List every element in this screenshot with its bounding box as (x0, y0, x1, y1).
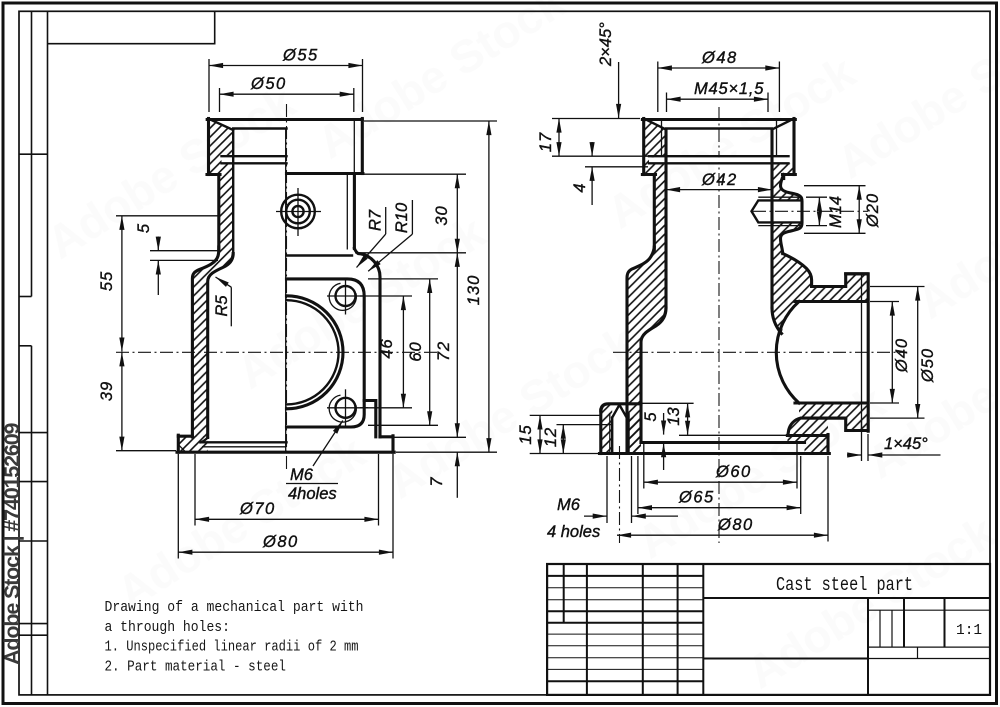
svg-text:Cast steel part: Cast steel part (776, 574, 913, 596)
svg-text:Ø50: Ø50 (919, 348, 937, 383)
svg-text:2×45°: 2×45° (597, 22, 615, 67)
svg-text:Ø80: Ø80 (717, 516, 754, 534)
svg-text:72: 72 (435, 341, 453, 361)
svg-text:R10: R10 (393, 202, 411, 233)
svg-text:4 holes: 4 holes (547, 523, 600, 541)
svg-text:46: 46 (378, 338, 396, 358)
svg-text:4holes: 4holes (288, 485, 337, 503)
svg-text:Ø80: Ø80 (262, 533, 299, 551)
svg-text:Ø42: Ø42 (701, 171, 738, 189)
svg-text:Ø20: Ø20 (864, 193, 882, 228)
svg-text:39: 39 (98, 381, 116, 401)
svg-text:Ø40: Ø40 (893, 338, 911, 373)
svg-text:M6: M6 (290, 466, 314, 484)
svg-text:Ø55: Ø55 (282, 47, 319, 65)
svg-text:17: 17 (537, 132, 555, 152)
svg-text:7: 7 (428, 477, 446, 487)
svg-text:30: 30 (433, 205, 451, 225)
svg-text:4: 4 (571, 183, 589, 192)
svg-text:Ø50: Ø50 (250, 75, 287, 93)
svg-text:Ø48: Ø48 (701, 49, 738, 67)
svg-text:12: 12 (542, 427, 560, 447)
svg-text:Ø60: Ø60 (715, 463, 752, 481)
svg-text:55: 55 (98, 271, 116, 291)
svg-text:Ø65: Ø65 (678, 489, 715, 507)
svg-text:60: 60 (407, 341, 425, 361)
svg-text:M14: M14 (827, 196, 845, 228)
svg-text:5: 5 (642, 412, 660, 422)
svg-text:R7: R7 (367, 209, 385, 231)
svg-text:Ø70: Ø70 (239, 500, 276, 518)
svg-text:1×45°: 1×45° (884, 435, 928, 453)
svg-text:2. Part material - steel: 2. Part material - steel (105, 658, 287, 675)
svg-text:Adobe Stock | #740152609: Adobe Stock | #740152609 (0, 422, 24, 665)
svg-text:5: 5 (135, 223, 153, 233)
svg-text:M6: M6 (557, 496, 581, 514)
svg-text:130: 130 (465, 275, 483, 306)
svg-text:1. Unspecified linear radii of: 1. Unspecified linear radii of 2 mm (105, 639, 359, 656)
svg-text:a through holes:: a through holes: (105, 619, 231, 636)
svg-text:13: 13 (665, 407, 683, 426)
svg-text:M45×1,5: M45×1,5 (694, 80, 764, 98)
svg-text:Drawing of a mechanical part w: Drawing of a mechanical part with (105, 599, 364, 616)
svg-text:1:1: 1:1 (956, 623, 982, 639)
svg-text:15: 15 (517, 424, 535, 444)
svg-text:R5: R5 (213, 295, 231, 317)
